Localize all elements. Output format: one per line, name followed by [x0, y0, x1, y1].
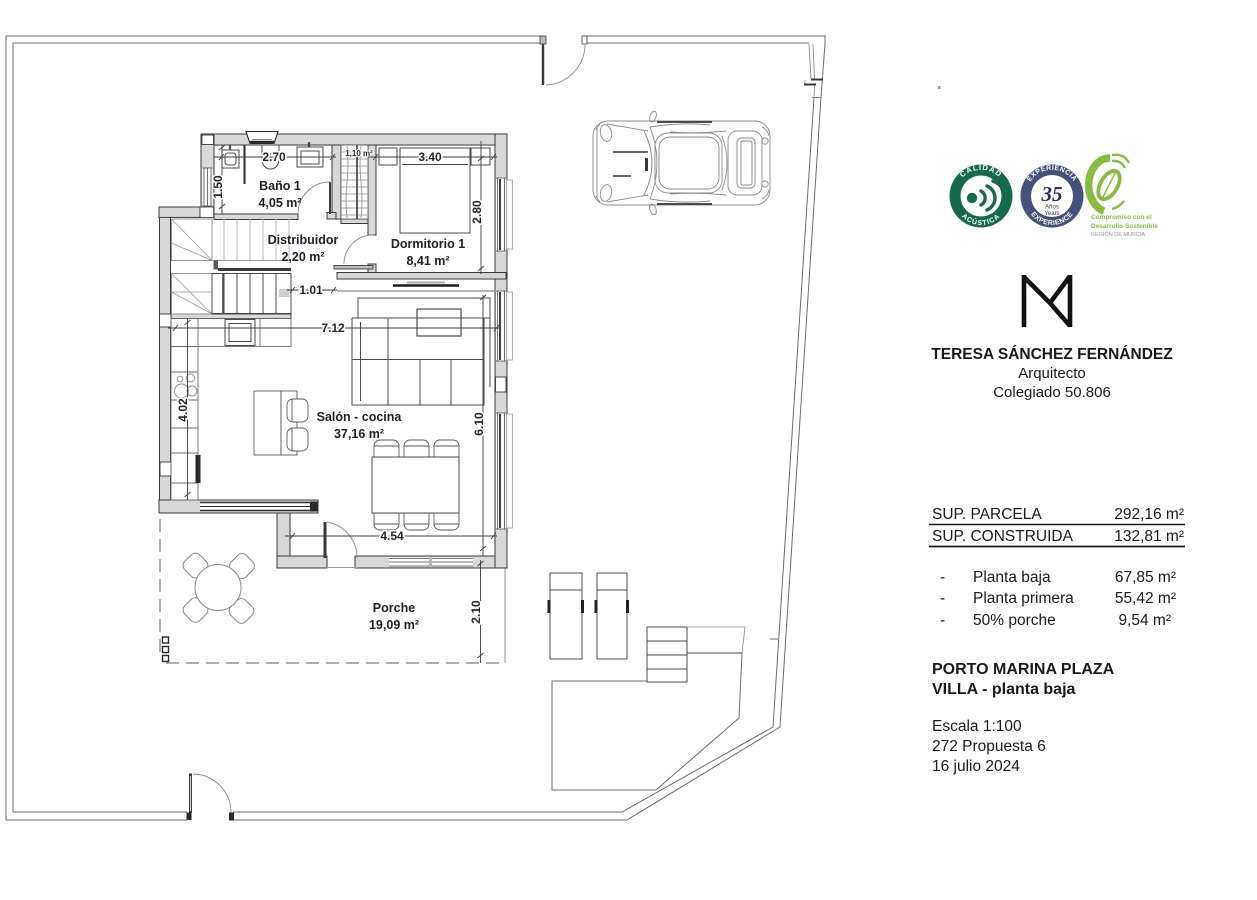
svg-text:55,42 m²: 55,42 m² — [1115, 590, 1176, 607]
svg-text:4.02: 4.02 — [176, 398, 190, 422]
svg-text:1.50: 1.50 — [211, 175, 225, 199]
svg-text:2.10: 2.10 — [469, 600, 483, 624]
svg-text:7.12: 7.12 — [321, 321, 345, 335]
svg-text:Baño 1: Baño 1 — [259, 179, 301, 193]
svg-text:6.10: 6.10 — [472, 412, 486, 436]
svg-text:2.80: 2.80 — [470, 200, 484, 224]
svg-text:PORTO MARINA PLAZA: PORTO MARINA PLAZA — [932, 661, 1115, 678]
svg-text:REGIÓN DE MURCIA: REGIÓN DE MURCIA — [1091, 231, 1145, 238]
svg-text:Arquitecto: Arquitecto — [1018, 365, 1086, 382]
svg-text:2,20 m²: 2,20 m² — [281, 250, 324, 264]
svg-text:4.54: 4.54 — [380, 529, 404, 543]
svg-text:Salón - cocina: Salón - cocina — [317, 410, 403, 424]
svg-text:9,54 m²: 9,54 m² — [1118, 612, 1171, 629]
svg-text:Años: Años — [1045, 205, 1059, 211]
svg-text:SUP. CONSTRUIDA: SUP. CONSTRUIDA — [932, 528, 1074, 545]
svg-text:Planta primera: Planta primera — [973, 590, 1074, 607]
svg-text:4,05 m²: 4,05 m² — [258, 196, 301, 210]
svg-text:1.01: 1.01 — [299, 283, 323, 297]
svg-text:Planta baja: Planta baja — [973, 569, 1051, 586]
svg-text:Escala 1:100: Escala 1:100 — [932, 718, 1022, 735]
svg-text:TERESA SÁNCHEZ FERNÁNDEZ: TERESA SÁNCHEZ FERNÁNDEZ — [931, 346, 1173, 363]
svg-text:Distribuidor: Distribuidor — [268, 233, 339, 247]
svg-text:Porche: Porche — [373, 601, 415, 615]
svg-text:132,81 m²: 132,81 m² — [1114, 528, 1184, 545]
svg-text:Desarrollo Sostenible: Desarrollo Sostenible — [1091, 223, 1158, 230]
svg-text:67,85 m²: 67,85 m² — [1115, 569, 1176, 586]
svg-text:8,41 m²: 8,41 m² — [406, 254, 449, 268]
svg-text:16 julio 2024: 16 julio 2024 — [932, 758, 1020, 775]
svg-text:VILLA - planta baja: VILLA - planta baja — [932, 681, 1076, 698]
svg-text:Dormitorio 1: Dormitorio 1 — [391, 237, 465, 251]
svg-text:272 Propuesta 6: 272 Propuesta 6 — [932, 738, 1046, 755]
svg-text:2.70: 2.70 — [262, 150, 286, 164]
svg-text:Compromiso con el: Compromiso con el — [1091, 214, 1152, 221]
svg-text:-: - — [940, 612, 945, 629]
svg-text:19,09 m²: 19,09 m² — [369, 618, 419, 632]
svg-text:SUP. PARCELA: SUP. PARCELA — [932, 506, 1042, 523]
svg-text:-: - — [940, 590, 945, 607]
svg-text:35: 35 — [1041, 182, 1063, 206]
svg-text:3.40: 3.40 — [418, 150, 442, 164]
svg-text:37,16 m²: 37,16 m² — [334, 427, 384, 441]
svg-text:Years: Years — [1044, 211, 1059, 217]
svg-text:Colegiado 50.806: Colegiado 50.806 — [993, 384, 1111, 401]
svg-text:292,16 m²: 292,16 m² — [1114, 506, 1184, 523]
svg-text:-: - — [940, 569, 945, 586]
svg-text:50% porche: 50% porche — [973, 612, 1056, 629]
